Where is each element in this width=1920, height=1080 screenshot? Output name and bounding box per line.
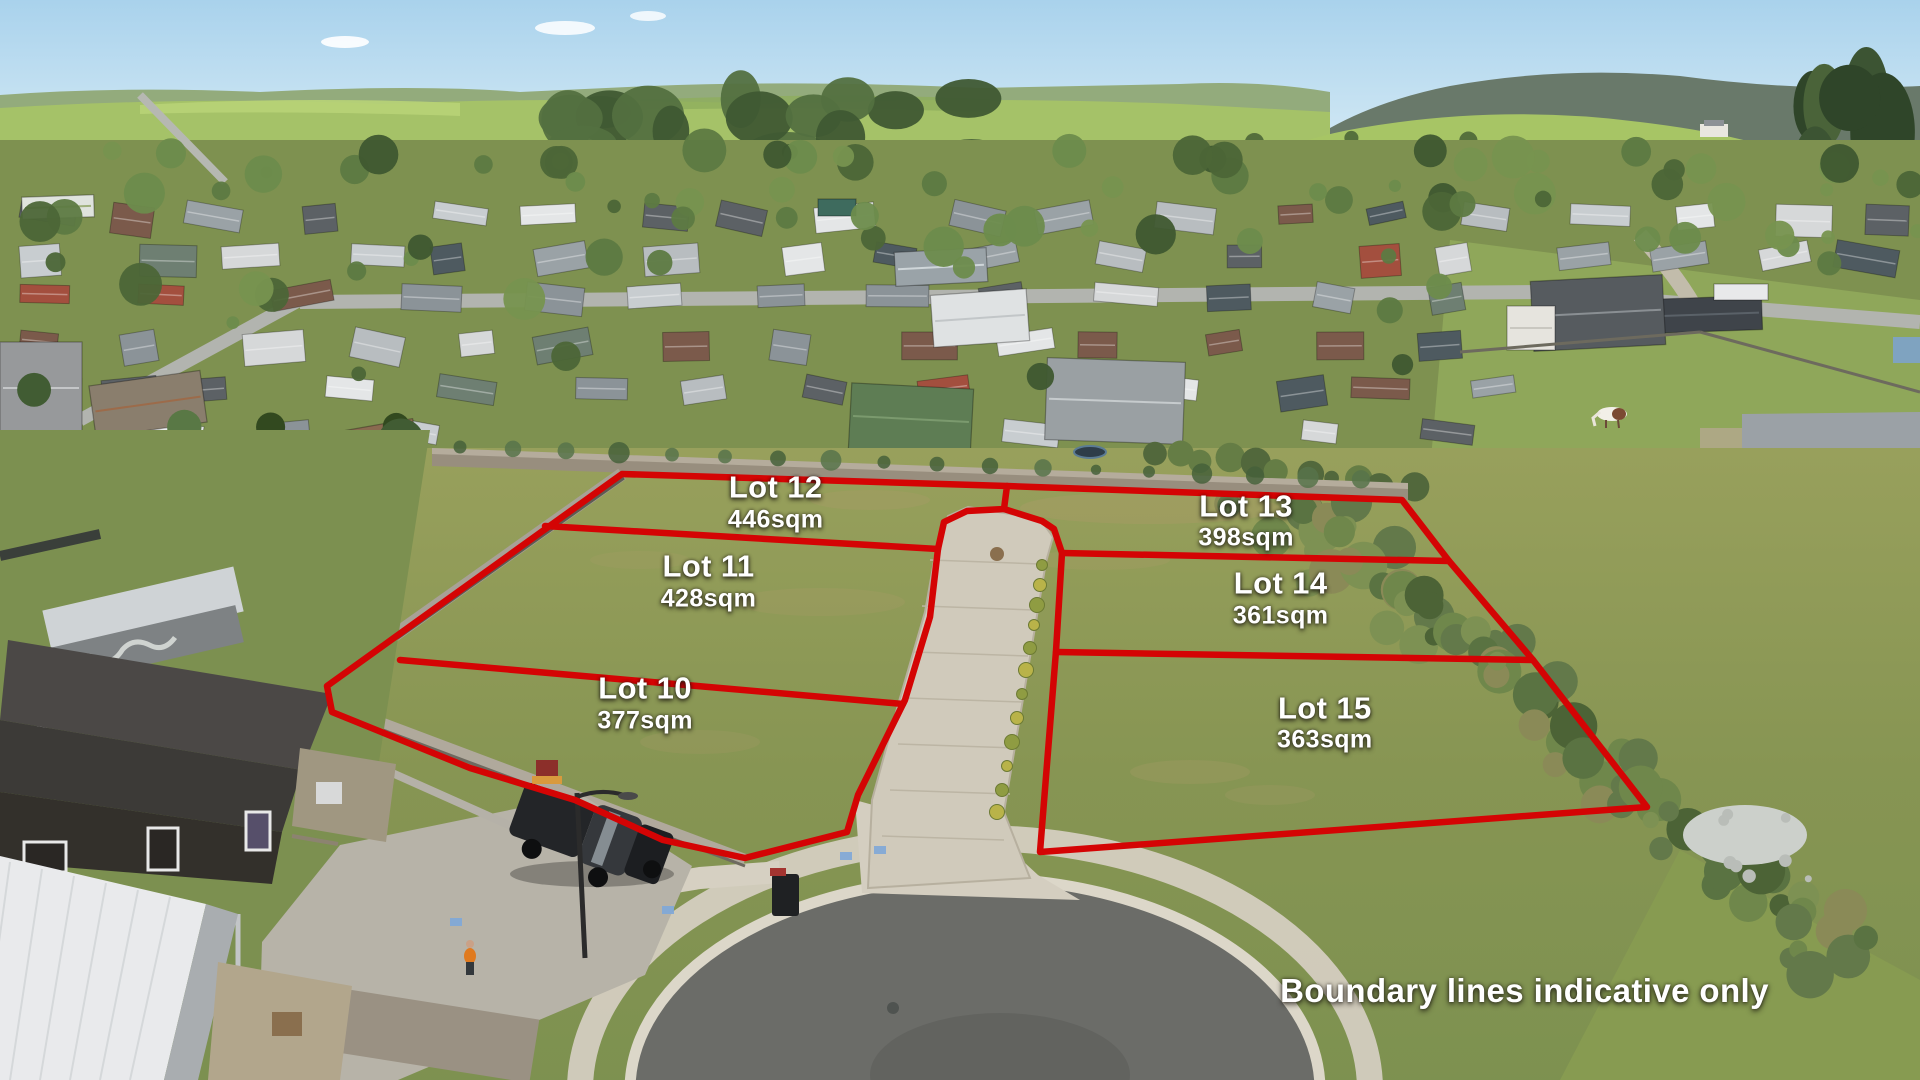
aerial-scene bbox=[0, 0, 1920, 1080]
painted-photo-layers bbox=[0, 0, 1920, 1080]
blue-marker bbox=[840, 852, 852, 860]
blue-marker bbox=[450, 918, 462, 926]
wheelie-bin bbox=[770, 868, 799, 916]
boundary-disclaimer: Boundary lines indicative only bbox=[1280, 972, 1769, 1010]
blue-marker bbox=[662, 906, 674, 914]
aerial-photo: Lot 12 446sqm Lot 11 428sqm Lot 10 377sq… bbox=[0, 0, 1920, 1080]
blue-marker bbox=[874, 846, 886, 854]
